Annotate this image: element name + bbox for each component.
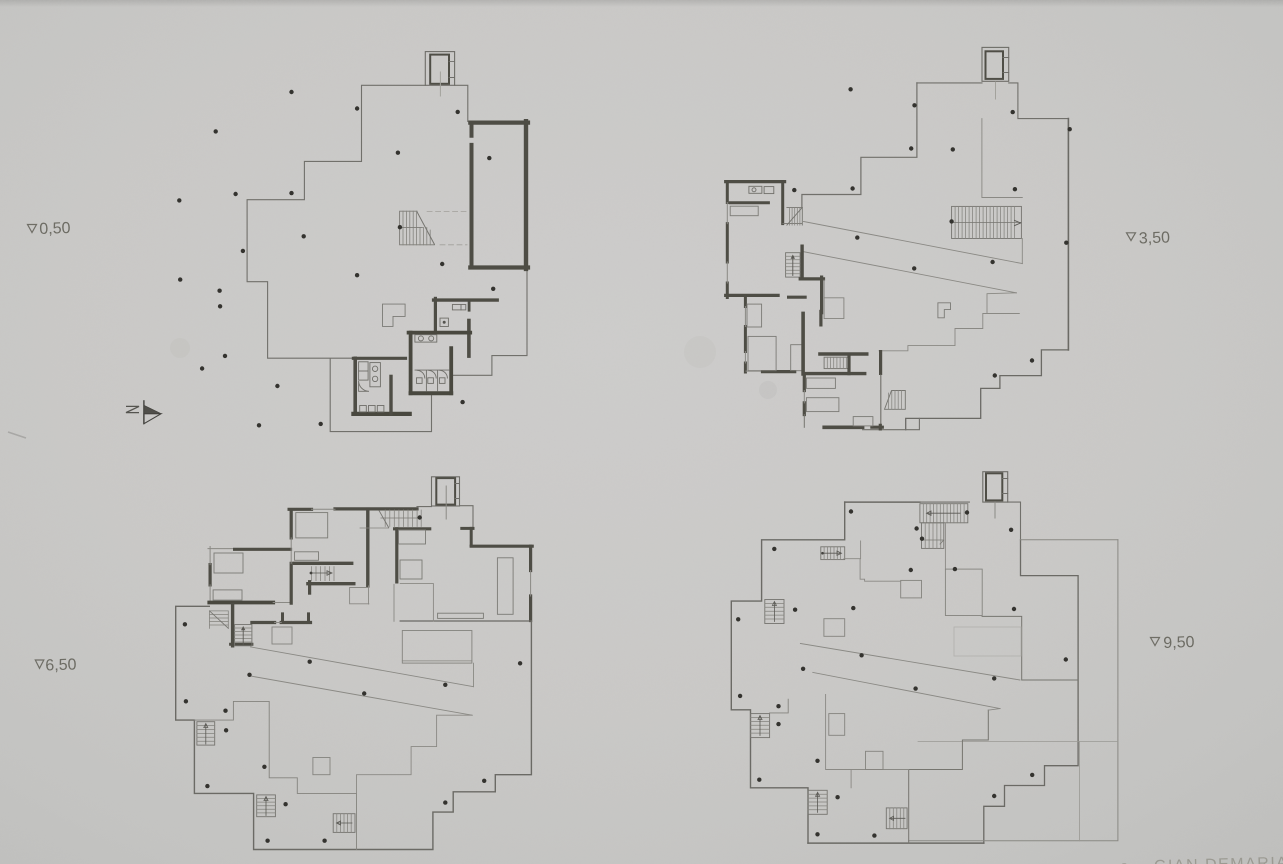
svg-text:3,50: 3,50	[1139, 229, 1171, 247]
svg-text:6,50: 6,50	[45, 656, 77, 674]
svg-text:9,50: 9,50	[1163, 634, 1195, 652]
svg-text:0,50: 0,50	[39, 220, 71, 238]
